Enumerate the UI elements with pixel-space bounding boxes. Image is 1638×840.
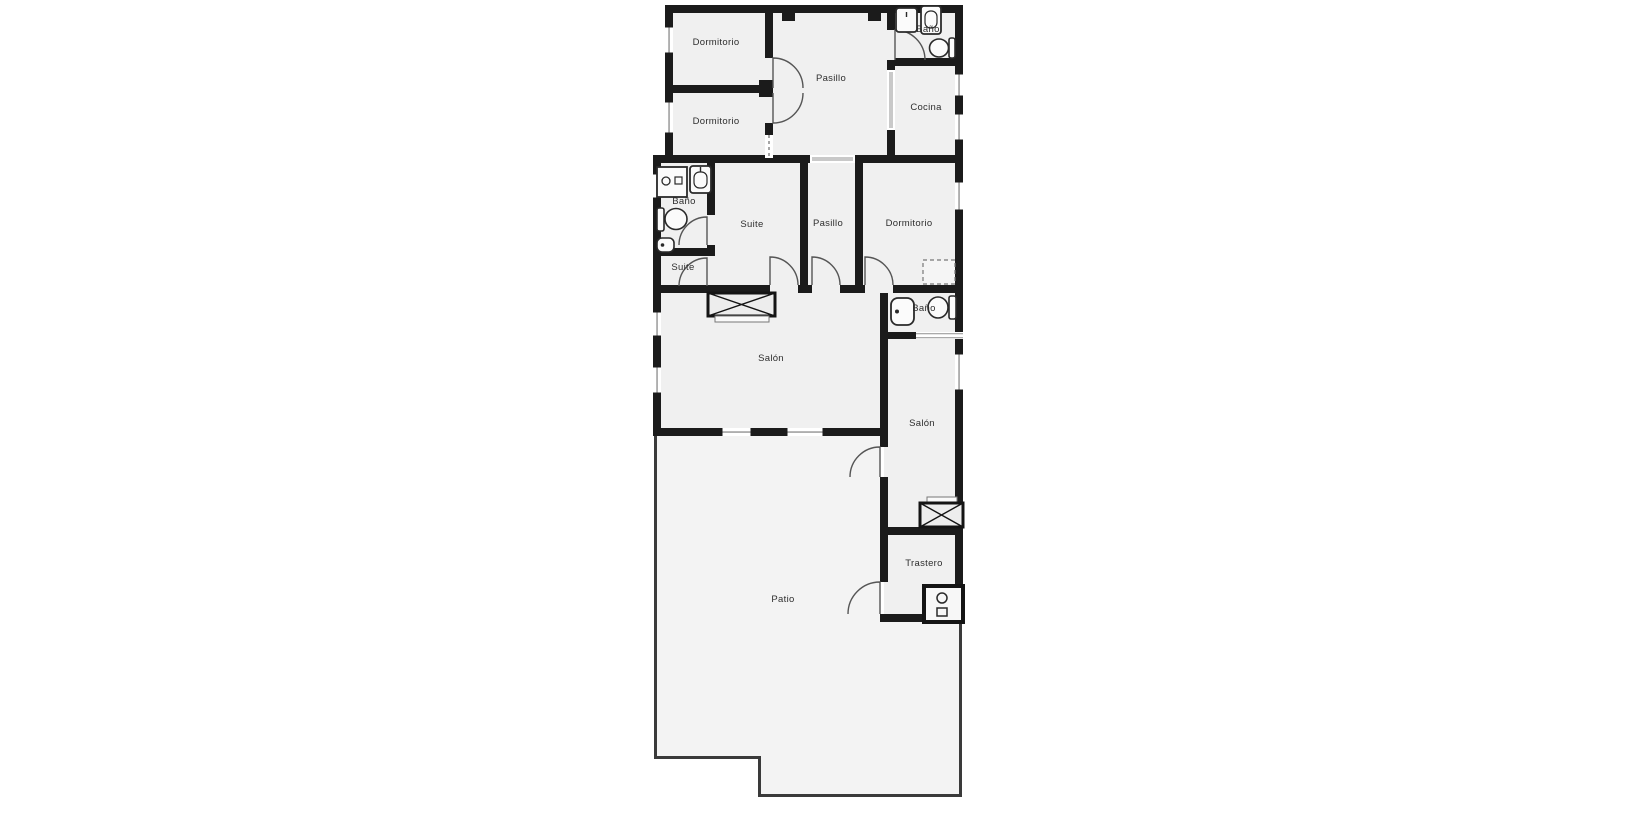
sink-icon <box>896 8 917 32</box>
room-label-bano-3: Baño <box>912 303 935 314</box>
page-background: Dormitorio Dormitorio Pasillo Baño Cocin… <box>0 0 1638 840</box>
window <box>653 310 661 338</box>
toilet-icon <box>657 208 687 231</box>
room-label-pasillo-2: Pasillo <box>813 218 843 229</box>
shower-closet-icon <box>924 586 963 622</box>
window <box>955 180 963 212</box>
room-label-salon-2: Salón <box>909 418 935 429</box>
washbasin-icon <box>690 166 711 193</box>
window <box>665 100 673 135</box>
window <box>653 365 661 395</box>
sliding-door <box>810 155 855 163</box>
floorplan: Dormitorio Dormitorio Pasillo Baño Cocin… <box>653 5 963 797</box>
bidet-icon <box>657 238 674 252</box>
room-label-dormitorio-2: Dormitorio <box>693 116 740 127</box>
closet-front <box>765 135 773 158</box>
toilet-icon <box>930 38 956 58</box>
stairs-icon <box>708 293 775 322</box>
room-label-cocina: Cocina <box>910 102 942 113</box>
room-label-trastero: Trastero <box>905 558 942 569</box>
window <box>665 25 673 55</box>
room-label-bano-1: Baño <box>916 24 939 35</box>
stairs-icon <box>920 497 963 527</box>
room-label-patio: Patio <box>771 594 794 605</box>
window <box>955 112 963 142</box>
room-label-dormitorio-1: Dormitorio <box>693 37 740 48</box>
washer-icon <box>657 167 687 197</box>
glazed-partition <box>916 332 963 339</box>
window <box>955 352 963 392</box>
room-label-suite-2: Suite <box>671 262 694 273</box>
room-label-salon-1: Salón <box>758 353 784 364</box>
bidet-icon <box>891 298 914 325</box>
sliding-door <box>887 70 895 130</box>
floorplan-drawing: Dormitorio Dormitorio Pasillo Baño Cocin… <box>0 0 1638 840</box>
room-label-dormitorio-3: Dormitorio <box>886 218 933 229</box>
room-label-bano-2: Baño <box>672 196 695 207</box>
window <box>785 428 825 436</box>
room-label-pasillo-1: Pasillo <box>816 73 846 84</box>
room-label-suite-1: Suite <box>740 219 763 230</box>
window <box>720 428 753 436</box>
wardrobe-dashed <box>923 260 955 284</box>
window <box>955 72 963 98</box>
